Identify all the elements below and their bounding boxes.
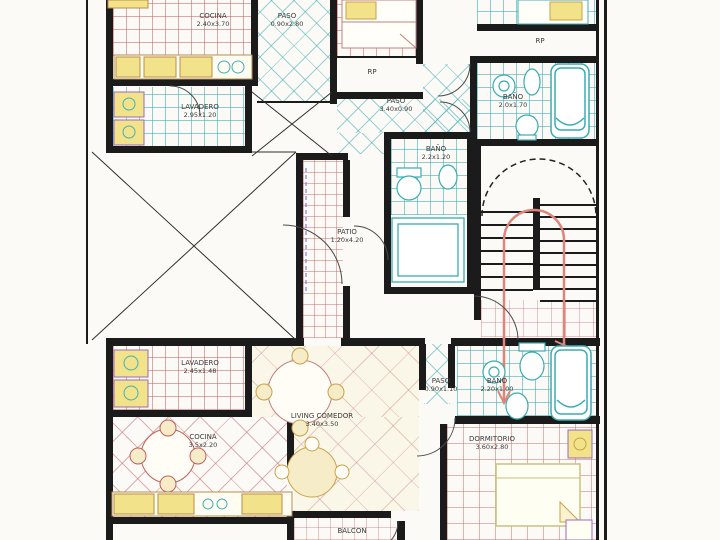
toilet-tank-icon (519, 343, 545, 351)
dining-table-icon (130, 420, 206, 492)
room-label-rp-right: RP (495, 37, 585, 45)
laundry-tub-icon (114, 350, 148, 407)
room-label-patio: PATIO1.20x4.20 (302, 228, 392, 244)
bathroom-fixtures-mid (397, 165, 457, 200)
laundry-tub-icon (114, 92, 144, 145)
room-label-balcon: BALCON (307, 527, 397, 535)
toilet-icon (397, 176, 421, 200)
room-label-paso-center: PASO3.40x0.90 (351, 97, 441, 113)
plan-linework (0, 0, 720, 540)
toilet-icon (520, 352, 544, 380)
room-label-lavadero-bottom: LAVADERO2.45x1.48 (155, 359, 245, 375)
kitchen-counter-icon (112, 492, 292, 516)
room-label-living: LIVING COMEDOR3.40x3.50 (277, 412, 367, 428)
shower-box-icon (392, 218, 464, 282)
bed-icon (342, 0, 416, 48)
coffee-table-icon (275, 437, 349, 497)
bed-icon (496, 464, 580, 526)
bidet-icon (506, 393, 528, 419)
room-label-rp-center: RP (327, 68, 417, 76)
room-label-lavadero-top: LAVADERO2.95x1.20 (155, 103, 245, 119)
room-label-paso-top: PASO0.90x2.80 (242, 12, 332, 28)
room-label-bano-mid: BAÑO2.2x1.20 (391, 145, 481, 161)
bidet-icon (439, 165, 457, 189)
room-label-cocina-bottom: COCINA3.5x2.20 (158, 433, 248, 449)
floor-plan-canvas: COCINA2.40x3.70 PASO0.90x2.80 LAVADERO2.… (0, 0, 720, 540)
room-label-dormitorio: DORMITORIO3.60x2.80 (447, 435, 537, 451)
bidet-icon (524, 69, 540, 95)
room-label-bano-bottom: BAÑO2.20x1.00 (452, 377, 542, 393)
bathtub-icon (551, 346, 591, 420)
room-label-bano-top-right: BAÑO2.0x1.70 (468, 93, 558, 109)
bed-icon (518, 0, 588, 24)
toilet-icon (516, 115, 538, 137)
